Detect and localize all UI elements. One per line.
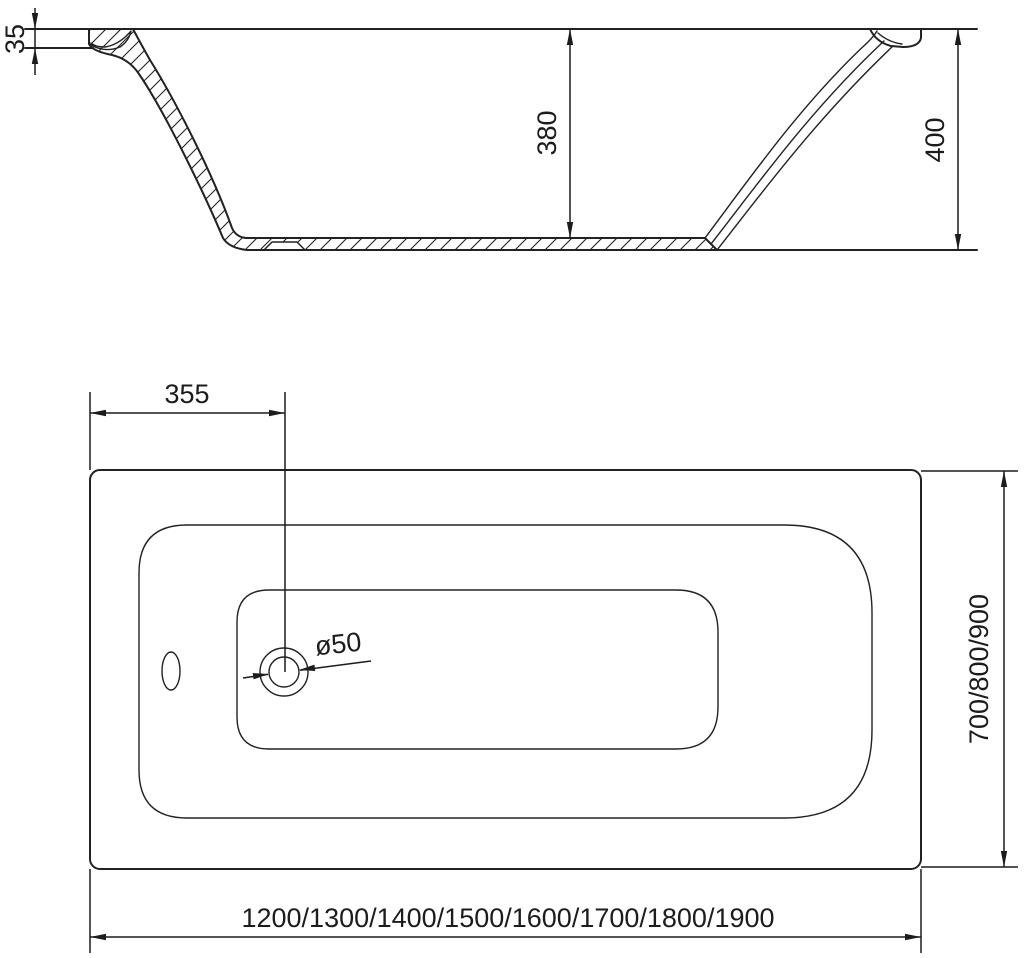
drain-outer-circle <box>260 648 308 696</box>
drain-recess <box>264 242 305 250</box>
overflow-hole <box>162 652 180 690</box>
dimension-drain-diameter: ø50 <box>243 627 371 680</box>
arrowhead <box>90 934 106 940</box>
arrowhead <box>269 410 285 416</box>
drawing-svg: 35 380 400 <box>0 0 1024 958</box>
arrowhead <box>90 410 106 416</box>
drain-inner-circle <box>269 657 299 687</box>
arrowhead <box>567 29 573 45</box>
arrowhead <box>955 234 961 250</box>
tub-outer-rect <box>90 470 921 869</box>
dim-label-length-options: 1200/1300/1400/1500/1600/1700/1800/1900 <box>241 903 774 933</box>
right-wall-middle-line <box>711 41 884 244</box>
section-view: 35 380 400 <box>0 8 977 250</box>
right-wall-inner-line <box>705 31 877 238</box>
dim-label-355: 355 <box>164 379 209 409</box>
arrowhead <box>567 222 573 238</box>
arrowhead <box>955 29 961 45</box>
dim-label-width-options: 700/800/900 <box>964 594 994 744</box>
dim-label-400: 400 <box>920 117 950 162</box>
arrowhead <box>905 934 921 940</box>
dim-label-380: 380 <box>532 110 562 155</box>
dim-label-drain-diameter: ø50 <box>313 627 362 662</box>
arrowhead <box>32 13 38 29</box>
right-wall-outer-line <box>717 46 893 250</box>
arrowhead <box>32 48 38 64</box>
arrowhead <box>1001 471 1007 487</box>
arrowhead <box>1001 851 1007 867</box>
bathtub-technical-drawing: 35 380 400 <box>0 0 1024 958</box>
dimension-rim-height: 35 <box>0 8 38 75</box>
dimension-overall-height: 400 <box>920 29 961 250</box>
plan-view: 355 ø50 700/800/900 1200/1300/1400/1 <box>90 379 1018 953</box>
tub-inner-rim <box>139 525 872 818</box>
dimension-drain-offset: 355 <box>90 379 285 470</box>
dimension-inner-depth: 380 <box>532 29 573 238</box>
right-rim-curl <box>870 29 921 47</box>
tub-shell-hatched <box>89 29 717 250</box>
dimension-length-options: 1200/1300/1400/1500/1600/1700/1800/1900 <box>90 869 921 953</box>
dimension-width-options: 700/800/900 <box>921 471 1018 867</box>
dim-label-35: 35 <box>0 24 30 54</box>
